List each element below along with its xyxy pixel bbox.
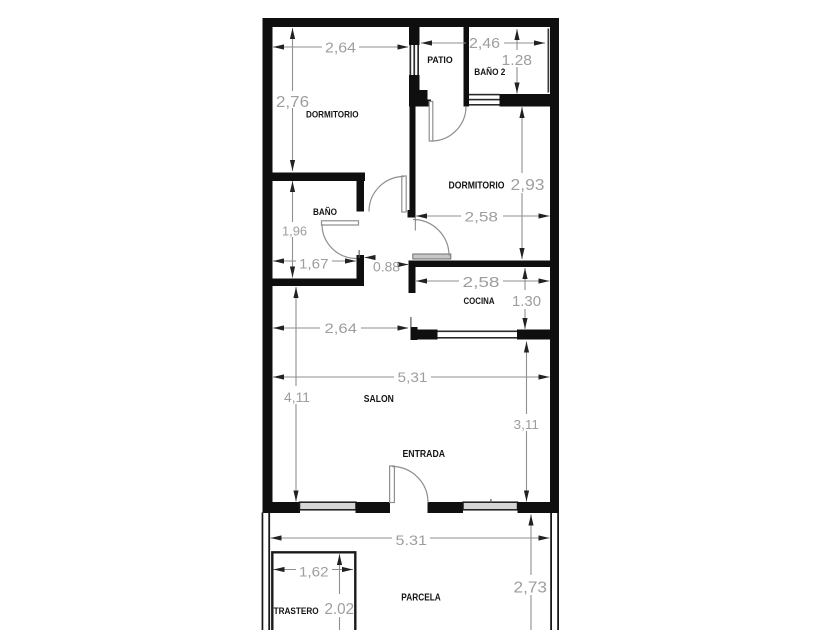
- svg-text:4,11: 4,11: [284, 389, 310, 405]
- svg-text:BAÑO: BAÑO: [313, 207, 337, 218]
- svg-text:ENTRADA: ENTRADA: [403, 449, 446, 460]
- svg-text:1.28: 1.28: [502, 52, 533, 69]
- svg-text:DORMITORIO: DORMITORIO: [306, 110, 359, 121]
- svg-text:2,58: 2,58: [463, 274, 500, 291]
- svg-text:2,46: 2,46: [469, 36, 500, 52]
- svg-text:5.31: 5.31: [396, 532, 428, 548]
- svg-text:2,58: 2,58: [465, 210, 499, 225]
- svg-text:2.02: 2.02: [325, 601, 355, 618]
- svg-text:COCINA: COCINA: [464, 296, 495, 307]
- svg-text:2,76: 2,76: [276, 94, 309, 111]
- svg-text:1,62: 1,62: [299, 564, 329, 580]
- svg-text:3,11: 3,11: [514, 417, 540, 432]
- svg-text:TRASTERO: TRASTERO: [274, 606, 319, 617]
- svg-text:2,93: 2,93: [511, 177, 545, 194]
- svg-text:1,96: 1,96: [282, 224, 307, 239]
- svg-text:PATIO: PATIO: [427, 55, 453, 65]
- svg-text:0.88: 0.88: [373, 259, 400, 275]
- svg-text:2,64: 2,64: [325, 41, 356, 57]
- svg-text:DORMITORIO: DORMITORIO: [449, 181, 505, 192]
- svg-text:2,64: 2,64: [325, 320, 358, 336]
- svg-text:PARCELA: PARCELA: [401, 592, 441, 603]
- svg-text:1,67: 1,67: [299, 256, 329, 272]
- svg-text:5,31: 5,31: [398, 369, 428, 385]
- svg-text:1.30: 1.30: [512, 293, 541, 310]
- svg-text:SALON: SALON: [364, 394, 394, 405]
- svg-text:2,73: 2,73: [514, 580, 548, 597]
